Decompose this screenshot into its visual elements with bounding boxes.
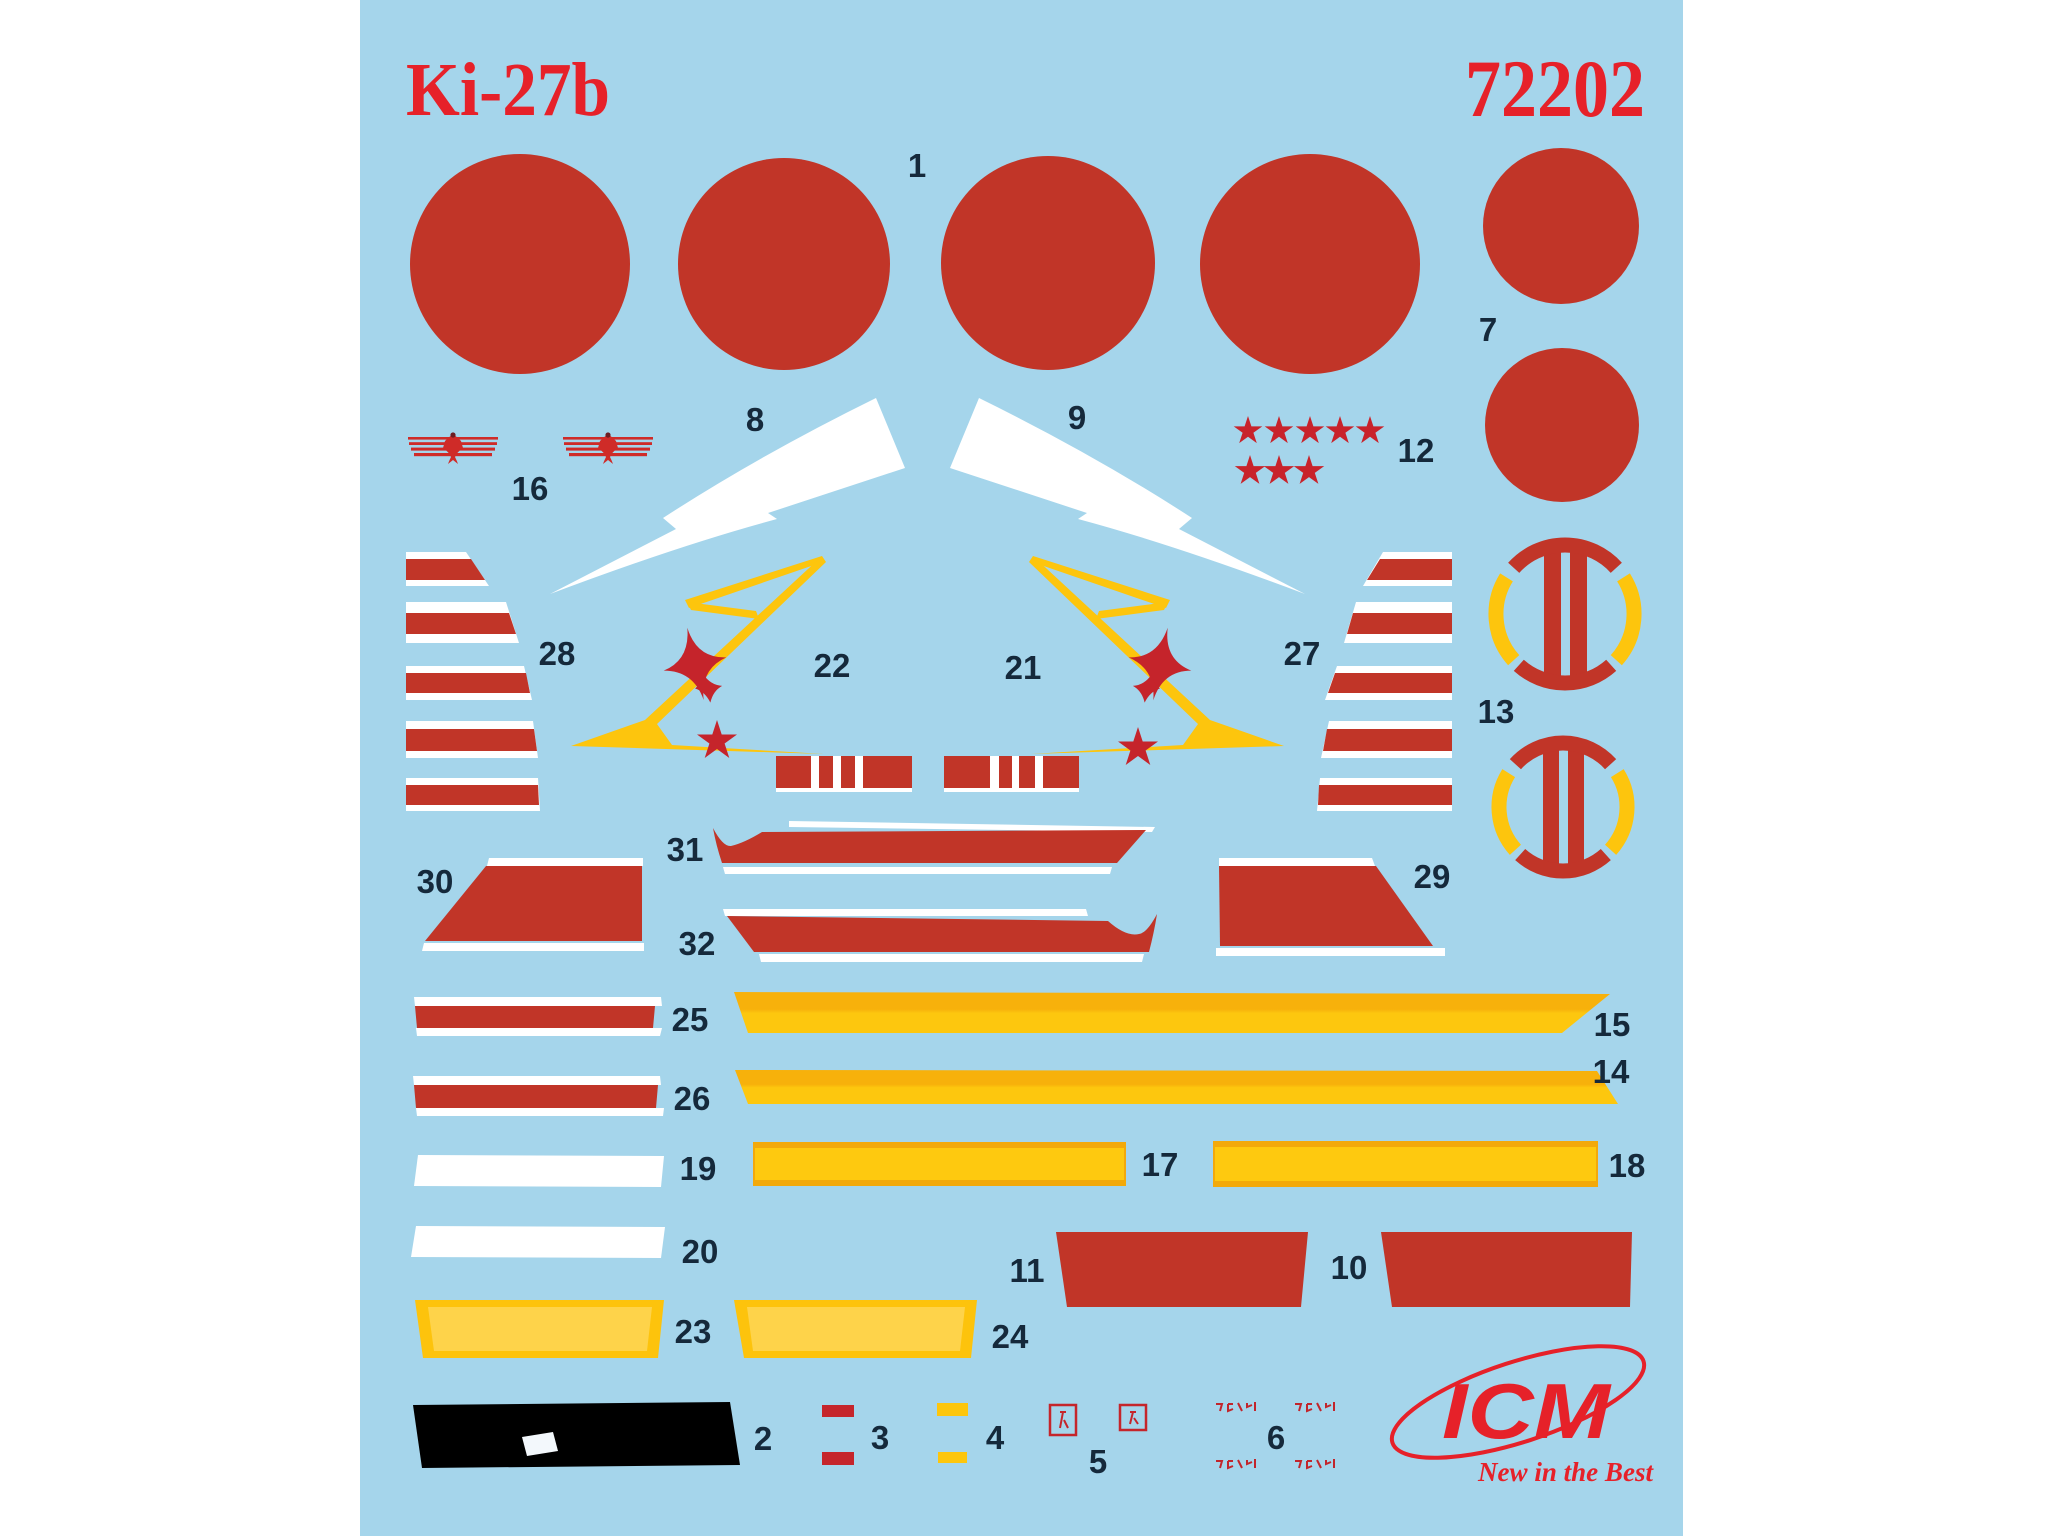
svg-text:3: 3 bbox=[871, 1419, 889, 1456]
svg-text:1: 1 bbox=[908, 147, 926, 184]
svg-text:8: 8 bbox=[746, 401, 764, 438]
svg-text:26: 26 bbox=[674, 1080, 711, 1117]
svg-text:5: 5 bbox=[1089, 1443, 1107, 1480]
svg-text:Ki-27b: Ki-27b bbox=[406, 48, 610, 132]
svg-text:6: 6 bbox=[1267, 1419, 1285, 1456]
svg-text:14: 14 bbox=[1593, 1053, 1630, 1090]
svg-text:7: 7 bbox=[1479, 311, 1497, 348]
svg-text:20: 20 bbox=[682, 1233, 719, 1270]
svg-text:19: 19 bbox=[680, 1150, 717, 1187]
svg-text:23: 23 bbox=[675, 1313, 712, 1350]
svg-text:24: 24 bbox=[992, 1318, 1029, 1355]
svg-text:4: 4 bbox=[986, 1419, 1005, 1456]
svg-text:30: 30 bbox=[417, 863, 454, 900]
svg-text:New in the Best: New in the Best bbox=[1477, 1457, 1654, 1487]
svg-text:28: 28 bbox=[539, 635, 576, 672]
svg-text:22: 22 bbox=[814, 647, 851, 684]
svg-text:13: 13 bbox=[1478, 693, 1515, 730]
svg-text:10: 10 bbox=[1331, 1249, 1368, 1286]
svg-text:16: 16 bbox=[512, 470, 549, 507]
svg-text:25: 25 bbox=[672, 1001, 709, 1038]
svg-text:15: 15 bbox=[1594, 1006, 1631, 1043]
svg-text:ICM: ICM bbox=[1442, 1367, 1612, 1455]
svg-text:72202: 72202 bbox=[1465, 43, 1645, 134]
svg-text:17: 17 bbox=[1142, 1146, 1179, 1183]
svg-text:32: 32 bbox=[679, 925, 716, 962]
svg-text:29: 29 bbox=[1414, 858, 1451, 895]
svg-text:2: 2 bbox=[754, 1420, 772, 1457]
svg-text:18: 18 bbox=[1609, 1147, 1646, 1184]
svg-text:12: 12 bbox=[1398, 432, 1435, 469]
svg-text:31: 31 bbox=[667, 831, 704, 868]
svg-text:9: 9 bbox=[1068, 399, 1086, 436]
svg-text:11: 11 bbox=[1010, 1252, 1045, 1289]
svg-text:27: 27 bbox=[1284, 635, 1321, 672]
svg-text:21: 21 bbox=[1005, 649, 1042, 686]
